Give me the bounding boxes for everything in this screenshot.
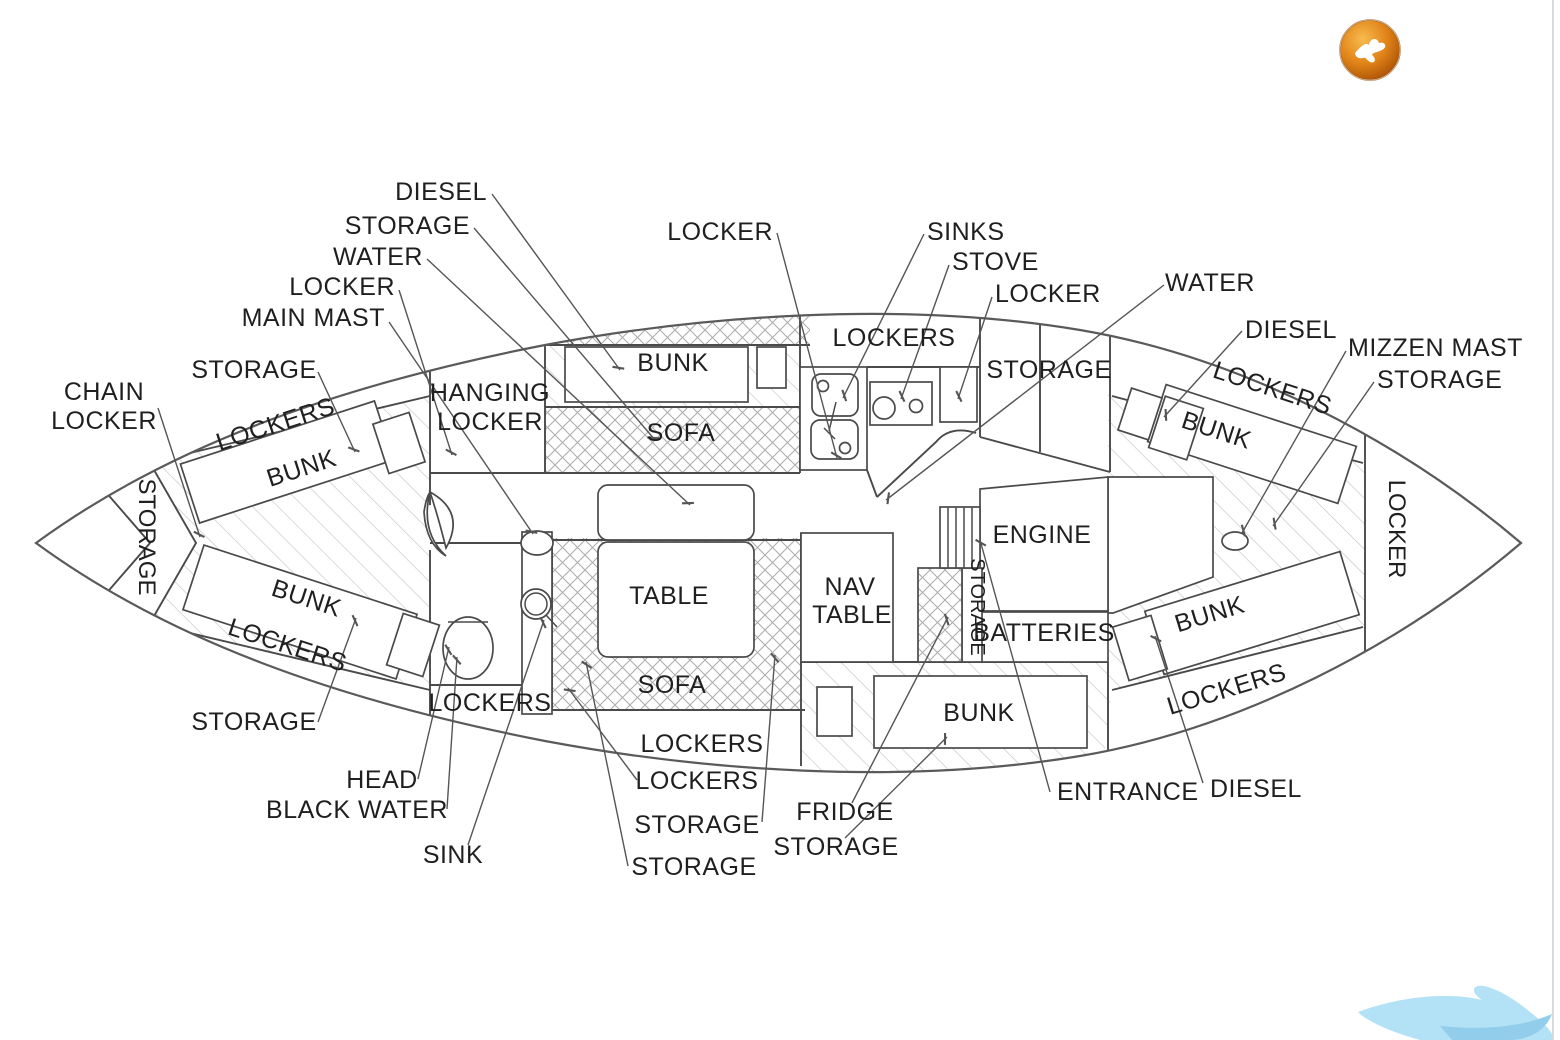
- label-stern-locker: LOCKER: [1383, 480, 1410, 579]
- label-galley-sinks: SINKS: [927, 218, 1005, 246]
- label-black-water: BLACK WATER: [266, 796, 448, 824]
- label-vberth-storage-top: STORAGE: [191, 356, 316, 384]
- label-mizzen-mast: MIZZEN MAST: [1348, 334, 1523, 362]
- companionway-walls: [867, 430, 976, 497]
- label-aft-storage-top: STORAGE: [1377, 366, 1502, 394]
- floorplan-svg: DIESEL STORAGE WATER LOCKER MAIN MAST ST…: [0, 0, 1560, 1040]
- label-hanging-locker-line1: HANGING: [430, 379, 550, 407]
- label-head-lockers: LOCKERS: [429, 689, 552, 717]
- galley-locker-box: [940, 367, 977, 422]
- label-batteries: BATTERIES: [973, 619, 1115, 647]
- label-quarter-bunk: BUNK: [943, 699, 1014, 727]
- label-salon-table: TABLE: [629, 582, 709, 610]
- label-salon-storage-2: STORAGE: [631, 853, 756, 881]
- galley-sink-unit: [800, 367, 867, 470]
- label-aft-diesel-top: DIESEL: [1245, 316, 1337, 344]
- label-nav-table-line2: TABLE: [812, 601, 892, 629]
- brand-logo: [1340, 20, 1400, 80]
- burner-large: [873, 397, 895, 419]
- galley-storage-walls: [980, 305, 1110, 472]
- fwd-bunk-side-locker: [757, 347, 786, 388]
- sink-drain-2: [840, 443, 851, 454]
- label-galley-storage: STORAGE: [986, 356, 1111, 384]
- leader-sinks: [843, 234, 924, 398]
- label-galley-stove: STOVE: [952, 248, 1039, 276]
- label-salon-lockers-callout: LOCKERS: [636, 767, 759, 795]
- label-fwd-cabin-bunk: BUNK: [637, 349, 708, 377]
- label-entrance: ENTRANCE: [1057, 778, 1199, 806]
- label-fwd-storage: STORAGE: [345, 212, 470, 240]
- label-fwd-water: WATER: [333, 243, 423, 271]
- label-sink: SINK: [423, 841, 483, 869]
- label-galley-locker-callout: LOCKER: [667, 218, 773, 246]
- label-aft-water: WATER: [1165, 269, 1255, 297]
- label-bow-storage-vertical: STORAGE: [133, 479, 160, 596]
- label-aft-diesel-bottom: DIESEL: [1210, 775, 1302, 803]
- mizzen-mast-section: [1222, 532, 1248, 550]
- salon-seat: [598, 485, 754, 540]
- label-chain-locker-line1: CHAIN: [64, 378, 144, 406]
- label-hanging-locker-line2: LOCKER: [437, 408, 543, 436]
- label-nav-table-line1: NAV: [824, 573, 875, 601]
- toilet: [443, 617, 493, 679]
- label-fwd-cabin-sofa: SOFA: [647, 419, 716, 447]
- label-fwd-locker: LOCKER: [289, 273, 395, 301]
- quarter-bunk-pillow: [817, 687, 852, 736]
- label-vberth-storage-bottom: STORAGE: [191, 708, 316, 736]
- fridge-box: [918, 568, 962, 662]
- leader-black-water: [447, 657, 457, 809]
- head-cabinet-strip: [522, 532, 552, 714]
- label-salon-sofa: SOFA: [638, 671, 707, 699]
- label-fridge: FRIDGE: [796, 798, 893, 826]
- label-galley-lockers-band: LOCKERS: [833, 324, 956, 352]
- label-salon-storage-1: STORAGE: [634, 811, 759, 839]
- boat-floorplan-page: DIESEL STORAGE WATER LOCKER MAIN MAST ST…: [0, 0, 1560, 1040]
- label-galley-locker2: LOCKER: [995, 280, 1101, 308]
- label-fwd-diesel: DIESEL: [395, 178, 487, 206]
- label-head: HEAD: [346, 766, 417, 794]
- toilet-bowl: [443, 617, 493, 679]
- main-mast-section: [521, 531, 553, 555]
- label-engine: ENGINE: [993, 521, 1092, 549]
- label-main-mast: MAIN MAST: [242, 304, 385, 332]
- page-edge-line: [1552, 0, 1554, 1040]
- galley-stove-unit: [870, 382, 932, 425]
- watermark-wave: [1358, 986, 1553, 1040]
- label-salon-lockers-band: LOCKERS: [641, 730, 764, 758]
- label-quarter-storage: STORAGE: [773, 833, 898, 861]
- label-chain-locker-line2: LOCKER: [51, 407, 157, 435]
- burner-small: [910, 400, 923, 413]
